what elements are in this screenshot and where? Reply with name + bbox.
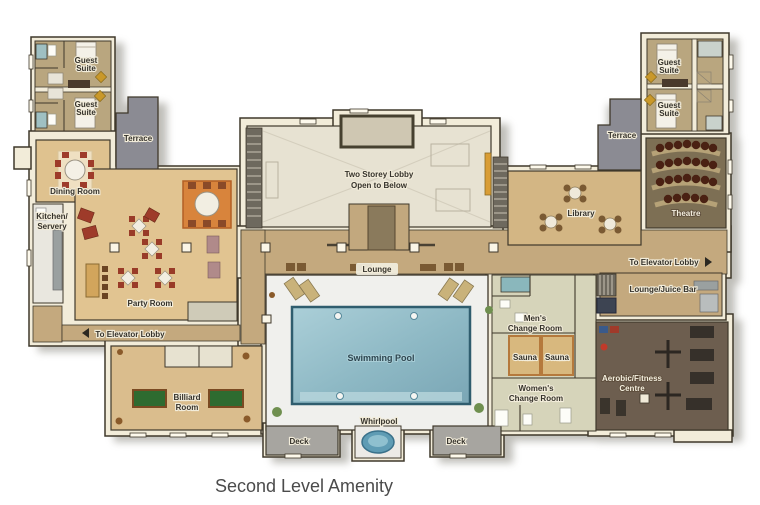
svg-text:Second Level Amenity: Second Level Amenity: [215, 476, 393, 496]
svg-text:Swimming Pool: Swimming Pool: [347, 353, 414, 363]
svg-text:Men's: Men's: [524, 314, 547, 323]
svg-text:To Elevator Lobby: To Elevator Lobby: [629, 258, 699, 267]
svg-text:Deck: Deck: [446, 437, 466, 446]
svg-text:Suite: Suite: [659, 109, 679, 118]
svg-text:Billiard: Billiard: [173, 393, 200, 402]
svg-text:Lounge: Lounge: [363, 265, 392, 274]
svg-text:Party Room: Party Room: [128, 299, 173, 308]
svg-text:Sauna: Sauna: [545, 353, 570, 362]
svg-text:Women's: Women's: [518, 384, 554, 393]
svg-text:Whirlpool: Whirlpool: [361, 417, 398, 426]
svg-text:Change Room: Change Room: [508, 324, 562, 333]
svg-text:To Elevator Lobby: To Elevator Lobby: [95, 330, 165, 339]
svg-text:Library: Library: [567, 209, 595, 218]
svg-text:Terrace: Terrace: [608, 131, 637, 140]
svg-text:Suite: Suite: [76, 64, 96, 73]
svg-text:Terrace: Terrace: [124, 134, 153, 143]
svg-text:Lounge/Juice Bar: Lounge/Juice Bar: [629, 285, 696, 294]
svg-text:Theatre: Theatre: [672, 209, 701, 218]
svg-text:Dining Room: Dining Room: [50, 187, 100, 196]
svg-text:Aerobic/Fitness: Aerobic/Fitness: [602, 374, 663, 383]
svg-text:Suite: Suite: [659, 66, 679, 75]
svg-text:Sauna: Sauna: [513, 353, 538, 362]
svg-text:Room: Room: [176, 403, 199, 412]
svg-text:Two Storey Lobby: Two Storey Lobby: [345, 170, 414, 179]
svg-text:Kitchen/: Kitchen/: [36, 212, 68, 221]
svg-text:Deck: Deck: [289, 437, 309, 446]
svg-text:Change Room: Change Room: [509, 394, 563, 403]
svg-text:Suite: Suite: [76, 108, 96, 117]
svg-text:Centre: Centre: [619, 384, 645, 393]
svg-text:Open to Below: Open to Below: [351, 181, 408, 190]
svg-text:Servery: Servery: [37, 222, 67, 231]
